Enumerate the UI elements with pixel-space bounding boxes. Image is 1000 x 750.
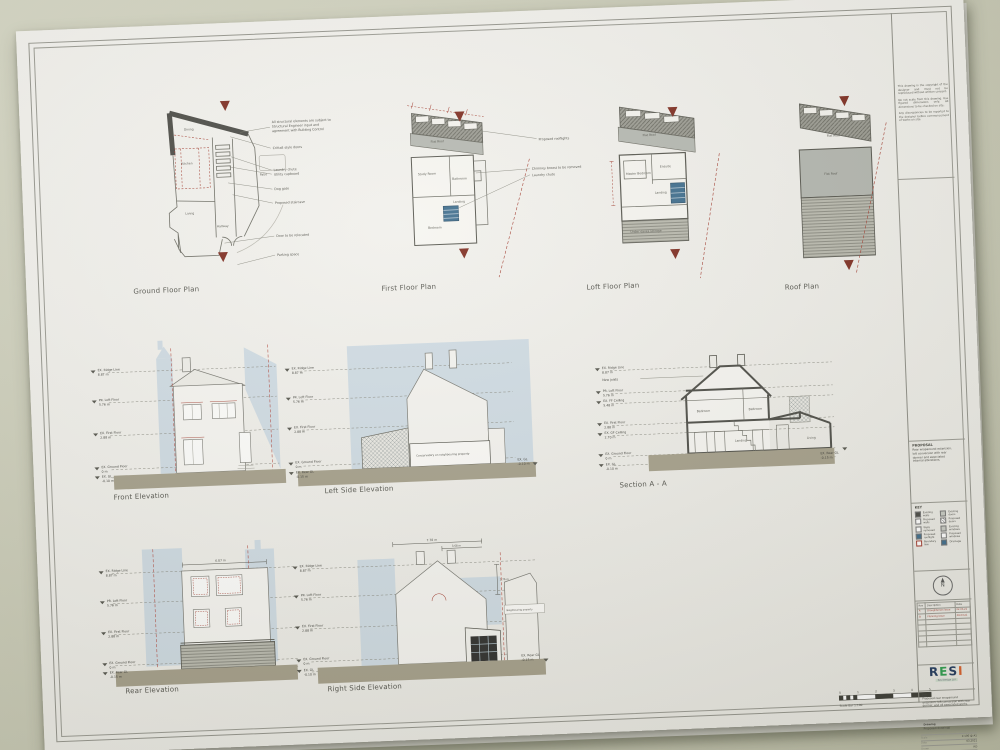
- north-arrow-icon: N: [932, 575, 953, 596]
- swatch-existing-window: [941, 525, 947, 531]
- swatch-existing-door: [940, 511, 946, 517]
- note-line: agreement with Building Control: [272, 127, 324, 133]
- key-item: Proposed rooflight: [916, 532, 941, 539]
- ground-floor-plan-svg: Dining Kitchen Living Hallway Patio All …: [78, 82, 366, 303]
- front-elevation-svg: EX. Ridge Line 8.87 m PR. Loft Floor 5.7…: [86, 324, 298, 510]
- callout: Parking space: [277, 252, 299, 257]
- flag-first: EX. First Floor 2.88 m: [287, 425, 316, 435]
- proposal-line: internal alterations.: [913, 458, 963, 464]
- flag-gl: EX. GL -0.10 m: [297, 668, 316, 677]
- level-value: 2.88 m: [302, 628, 313, 632]
- level-label: EX. Ridge Line: [106, 568, 129, 573]
- rear-elevation-svg: 6.87 m EX.: [94, 522, 316, 712]
- note-paragraph: Any discrepancies to be reported to the …: [899, 110, 949, 122]
- key-column-left: Existing walls Proposed walls Walls remo…: [915, 510, 941, 548]
- flag-gl-right: EX. GL -0.10 m: [517, 457, 537, 466]
- logo-letter: R: [929, 665, 940, 679]
- flag-first: EX. First Floor 2.88 m: [597, 420, 626, 430]
- joists-note: New joists: [602, 377, 618, 382]
- flag-ridge: EX. Ridge Line 8.87 m: [90, 367, 120, 377]
- key-label: Existing windows: [949, 524, 966, 531]
- flag-first: EX. First Floor 2.88 m: [295, 623, 324, 633]
- right-side-elevation: 7.78 m 3.68 m 2.76 m: [288, 512, 554, 717]
- swatch-rooflight: [916, 533, 922, 539]
- level-label: EX. Ground Floor: [303, 656, 330, 661]
- room-label: Ensuite: [660, 164, 671, 168]
- logo-letter: I: [958, 664, 964, 678]
- title-block-spacer: [898, 177, 964, 441]
- level-flags: EX. Ridge Line 8.87 m PR. Loft Floor 5.7…: [90, 367, 128, 483]
- logo-letter: S: [948, 664, 958, 678]
- level-value: 0 m: [605, 456, 611, 460]
- level-value: -0.10 m: [102, 479, 114, 483]
- callout: Dog gate: [274, 186, 289, 191]
- level-value: 2.70 m: [605, 435, 616, 439]
- field-value: RD: [973, 745, 977, 748]
- room-label: Flat Roof: [642, 133, 656, 138]
- rear-extension: [181, 641, 276, 669]
- key-item: Proposed doors: [941, 517, 966, 524]
- flag-ground: EX. Ground Floor 0 m: [598, 451, 632, 461]
- callout: Utility cupboard: [274, 172, 300, 177]
- key-label: Existing doors: [948, 510, 965, 517]
- key-label: Proposed doors: [949, 517, 966, 524]
- level-value: -0.10 m: [304, 672, 316, 676]
- field-value: 03.2021: [966, 740, 977, 743]
- swatch-boundary: [916, 540, 922, 546]
- section-a-a: Bedroom Bedroom Landing Living EX. Ridge…: [590, 314, 852, 492]
- level-value: 5.76 m: [99, 402, 110, 406]
- swatch-proposed-wall: [915, 519, 921, 525]
- front-elevation: EX. Ridge Line 8.87 m PR. Loft Floor 5.7…: [86, 324, 298, 510]
- room-label: Dining: [184, 127, 194, 131]
- rear-extension: [465, 626, 501, 663]
- note-paragraph: Do not scale from this drawing. Use figu…: [898, 96, 948, 108]
- title-block-logo: RESI Resi Design Ltd: [918, 662, 975, 690]
- level-value: -0.15 m: [296, 474, 308, 478]
- key-label: Walls removed: [923, 525, 940, 532]
- level-value: -0.15 m: [821, 455, 833, 459]
- level-label: EX. Ground Floor: [295, 459, 322, 464]
- swatch-drainage: [941, 539, 947, 545]
- revision-empty-row: [919, 639, 972, 647]
- joists-leader: [640, 376, 703, 379]
- north-label: N: [941, 582, 945, 588]
- neighbour-building: Neighbouring property: [503, 573, 546, 663]
- level-value: -0.10 m: [606, 467, 618, 471]
- key-label: Proposed windows: [949, 531, 966, 538]
- scale-number: 4: [911, 688, 913, 692]
- scale-bar-label: Scale Bar 1:100: [840, 703, 863, 708]
- room-label: Hallway: [217, 224, 229, 228]
- level-value: -0.15 m: [110, 675, 122, 679]
- key-item: Existing walls: [915, 511, 940, 518]
- callout: Door to be relocated: [276, 233, 309, 238]
- boundary-line: [695, 153, 724, 278]
- room-label: Landing: [735, 438, 747, 442]
- drawing-sheet: Dining Kitchen Living Hallway Patio All …: [16, 0, 992, 750]
- key-label: Existing walls: [923, 511, 940, 518]
- key-label: Proposed walls: [923, 518, 940, 525]
- field-label: Date: [921, 742, 927, 745]
- section-svg: Bedroom Bedroom Landing Living EX. Ridge…: [590, 314, 852, 492]
- glazed-door: [471, 636, 498, 662]
- scale-number: 0: [839, 691, 841, 695]
- level-value: 5.76 m: [293, 400, 304, 404]
- flag-ridge: EX. Ridge Line 8.87 m: [292, 563, 322, 573]
- room-label: Bathroom: [452, 176, 467, 181]
- level-label: EX. Ground Floor: [109, 660, 136, 665]
- left-side-elevation-svg: Conservatory on neighbouring property EX…: [280, 319, 542, 501]
- first-floor-rooms-block: [411, 155, 476, 245]
- ground-walls-thin: [166, 134, 261, 258]
- level-value: 8.87 m: [98, 372, 109, 376]
- logo-tagline: Resi Design Ltd: [936, 678, 958, 682]
- flag-ground: EX. Ground Floor 0 m: [296, 656, 330, 666]
- flag-ground: EX. Ground Floor 0 m: [288, 459, 322, 469]
- flag-ridge: EX. Ridge Line 8.87 m: [99, 568, 129, 578]
- title-block-fields: Scale1:100 @ A1 Date03.2021 DrawnRD Dwg …: [921, 732, 978, 750]
- key-item: Walls removed: [915, 525, 940, 532]
- flag-first: EX. First Floor 2.88 m: [101, 629, 130, 639]
- level-value: 2.88 m: [108, 634, 119, 638]
- revisions-table: Rev Description Date A Draughtsman issue…: [917, 600, 973, 647]
- photo-of-architectural-drawing: Dining Kitchen Living Hallway Patio All …: [0, 0, 1000, 750]
- flag-gl: EX. GL -0.10 m: [95, 474, 114, 483]
- flag-loft: PR. Loft Floor 5.76 m: [596, 388, 624, 398]
- title-block-notes: This drawing is the copyright of the des…: [895, 81, 955, 179]
- level-value: 8.87 m: [300, 568, 311, 572]
- flag-first: EX. First Floor 2.88 m: [93, 430, 122, 440]
- title-block-proposal: PROPOSAL Rear wraparound extension, loft…: [909, 439, 967, 503]
- title-block-north: N: [914, 568, 971, 600]
- level-value: 0 m: [109, 665, 115, 669]
- section-marker-bottom: [670, 249, 680, 259]
- key-label: Boundary line: [924, 540, 941, 547]
- boundary-line: [494, 159, 534, 277]
- room-label: Living: [185, 211, 194, 215]
- level-value: 5.76 m: [301, 597, 312, 601]
- drawing-text: Proposed drawings: [924, 725, 974, 731]
- level-value: 8.87 m: [292, 371, 303, 375]
- left-side-elevation: Conservatory on neighbouring property EX…: [280, 319, 542, 501]
- level-value: 2.88 m: [100, 435, 111, 439]
- flag-gf-ceiling: EX. GF Ceiling 2.70 m: [597, 430, 626, 440]
- callout: Proposed staircase: [275, 200, 305, 205]
- key-item: Proposed windows: [941, 531, 966, 538]
- level-label: EX. Ridge Line: [299, 563, 322, 568]
- swatch-removed-wall: [915, 526, 921, 532]
- swatch-proposed-door: [941, 518, 947, 524]
- level-flags: EX. Ridge Line 8.87 m PR. Loft Floor 5.7…: [99, 568, 137, 679]
- flag-ridge: EX. Ridge Line 8.87 m: [285, 366, 315, 376]
- ground-floor-plan: Dining Kitchen Living Hallway Patio All …: [78, 82, 367, 323]
- ground-callouts: Crittall style doors Laundry chute Utili…: [273, 145, 310, 257]
- field-value: 1:100 @ A1: [962, 734, 977, 738]
- room-label: Kitchen: [181, 161, 193, 165]
- ground-leader-lines: [220, 127, 275, 265]
- room-label: Flat Roof: [431, 139, 445, 144]
- flag-ridge: EX. Ridge Line 8.87 m: [595, 365, 625, 375]
- level-value: 8.87 m: [106, 573, 117, 577]
- room-label: Living: [807, 436, 816, 440]
- chimney: [182, 358, 191, 372]
- level-value: 5.76 m: [603, 393, 614, 397]
- swatch-existing-wall: [915, 512, 921, 518]
- note-paragraph: This drawing is the copyright of the des…: [898, 83, 948, 95]
- north-arrow-pointer: [941, 577, 945, 582]
- level-value: 0 m: [295, 465, 301, 469]
- dim-inner: 3.68 m: [452, 543, 462, 547]
- resi-logo: RESI: [929, 665, 964, 678]
- title-block-job: Job Proposed rear wraparound extension, …: [919, 688, 976, 720]
- flag-ff-ceiling: EX. FF Ceiling 5.48 m: [596, 398, 625, 408]
- key-column-right: Existing doors Proposed doors Existing w…: [940, 509, 966, 547]
- level-value: -0.15 m: [521, 658, 533, 662]
- room-label: Bedroom: [749, 407, 763, 412]
- key-label: Drainage: [950, 540, 962, 543]
- red-dims: [610, 161, 616, 205]
- ground-structural-note: All structural elements are subject to S…: [272, 118, 332, 133]
- ground-walls-thick: [169, 110, 249, 155]
- title-block-revisions: Rev Description Date A Draughtsman issue…: [915, 598, 974, 664]
- room-label: Patio: [260, 172, 268, 176]
- section-marker-top: [220, 101, 230, 111]
- front-roof-slope: [801, 195, 875, 258]
- flag-gl: EX. GL -0.10 m: [599, 462, 618, 471]
- scale-number: 2: [875, 689, 877, 693]
- key-item: Existing doors: [940, 510, 965, 517]
- level-label: EX. Ground Floor: [605, 451, 632, 456]
- outrigger: [488, 428, 505, 464]
- level-value: 2.88 m: [604, 425, 615, 429]
- level-label: EX. Ridge Line: [292, 366, 315, 371]
- dim-overall: 7.78 m: [427, 538, 438, 542]
- level-value: 0 m: [303, 662, 309, 666]
- section-marker-bottom: [844, 260, 854, 270]
- job-text: Proposed rear wraparound extension, loft…: [922, 695, 972, 708]
- level-label: EX. Ridge Line: [602, 365, 625, 370]
- scale-number: 1: [857, 690, 859, 694]
- key-item: Existing windows: [941, 524, 966, 531]
- room-label: Flat Roof: [824, 171, 838, 176]
- flag-loft: PR. Loft Floor 5.76 m: [92, 397, 120, 407]
- key-label: Proposed rooflight: [924, 532, 941, 539]
- level-value: 5.76 m: [107, 603, 118, 607]
- key-item: Drainage: [941, 539, 966, 546]
- flag-loft: PR. Loft Floor 5.76 m: [294, 592, 322, 602]
- level-value: 5.48 m: [603, 403, 614, 407]
- level-value: -0.10 m: [518, 462, 530, 466]
- flag-loft: PR. Loft Floor 5.76 m: [286, 395, 314, 405]
- field-label: Scale: [921, 736, 928, 739]
- key-item: Boundary line: [916, 540, 941, 547]
- room-label: Landing: [453, 199, 465, 203]
- level-value: 2.88 m: [294, 430, 305, 434]
- room-label: Bedroom: [428, 225, 442, 230]
- title-block-key: KEY Existing walls Proposed walls Walls …: [911, 501, 970, 571]
- key-item: Proposed walls: [915, 518, 940, 525]
- dim-value: 6.87 m: [215, 558, 226, 562]
- level-value: 0 m: [102, 469, 108, 473]
- flag-ground: EX. Ground Floor 0 m: [94, 464, 128, 474]
- rear-elevation: 6.87 m EX.: [94, 522, 316, 712]
- section-marker-bottom: [218, 252, 228, 262]
- flag-loft: PR. Loft Floor 5.76 m: [100, 598, 128, 608]
- section-marker-bottom: [459, 248, 469, 258]
- swatch-proposed-window: [941, 532, 947, 538]
- site-context-line: [235, 205, 285, 253]
- plan-title: Roof Plan: [785, 282, 820, 291]
- callout: Crittall style doors: [273, 145, 303, 150]
- room-label: Study Room: [418, 172, 436, 177]
- level-label: EX. Ridge Line: [97, 367, 120, 372]
- section-marker-top: [839, 96, 849, 106]
- room-label: Landing: [655, 190, 667, 194]
- room-label: Bedroom: [697, 409, 711, 414]
- scale-number: 3: [893, 689, 895, 693]
- level-label: EX. Ground Floor: [101, 464, 128, 469]
- level-value: 8.87 m: [602, 370, 613, 374]
- flag-ground: EX. Ground Floor 0 m: [102, 660, 136, 670]
- room-label: Flat Roof: [827, 133, 841, 138]
